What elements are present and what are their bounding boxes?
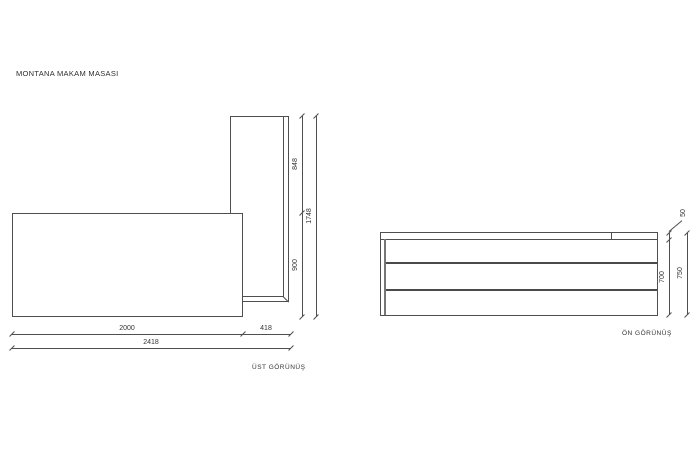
front-view-side-panel-line bbox=[384, 239, 386, 315]
top-view-desk-outline bbox=[12, 213, 243, 317]
drawing-title: MONTANA MAKAM MASASI bbox=[16, 69, 119, 78]
front-view-top-panel-line bbox=[380, 239, 658, 240]
dim-label-return-depth: 848 bbox=[292, 158, 300, 170]
front-view-caption: ÖN GÖRÜNÜŞ bbox=[622, 330, 672, 337]
front-view-dim-line-heights bbox=[669, 233, 670, 315]
drawing-sheet: MONTANA MAKAM MASASI 848 900 1748 2000 4… bbox=[0, 0, 700, 450]
dim-label-total-width: 2418 bbox=[143, 339, 159, 347]
top-view-dim-line-total-width bbox=[12, 348, 291, 349]
top-view-dim-line-widths bbox=[12, 334, 291, 335]
top-view-return-unit-inner-edge bbox=[283, 116, 284, 297]
dim-label-total-height: 750 bbox=[677, 267, 685, 279]
dim-leader-top-thickness bbox=[669, 220, 683, 232]
dim-label-return-width: 418 bbox=[260, 325, 272, 333]
front-view-drawer-divider-1 bbox=[386, 262, 657, 264]
dim-label-desk-depth: 900 bbox=[292, 259, 300, 271]
front-view-drawer-divider-2 bbox=[386, 289, 657, 291]
dim-label-body-height: 700 bbox=[659, 271, 667, 283]
front-view-top-panel-joint-line bbox=[611, 232, 612, 240]
front-view-dim-line-total-height bbox=[687, 233, 688, 315]
dim-tick bbox=[684, 312, 690, 318]
top-view-dim-line-total-depth bbox=[316, 116, 317, 317]
top-view-dim-line-depths bbox=[302, 116, 303, 317]
top-view-caption: ÜST GÖRÜNÜŞ bbox=[252, 364, 305, 371]
front-view-body-outline bbox=[380, 232, 658, 316]
dim-label-total-depth: 1748 bbox=[306, 208, 314, 224]
dim-label-desk-width: 2000 bbox=[119, 325, 135, 333]
dim-label-top-thickness: 50 bbox=[680, 209, 688, 217]
dim-tick bbox=[666, 312, 672, 318]
